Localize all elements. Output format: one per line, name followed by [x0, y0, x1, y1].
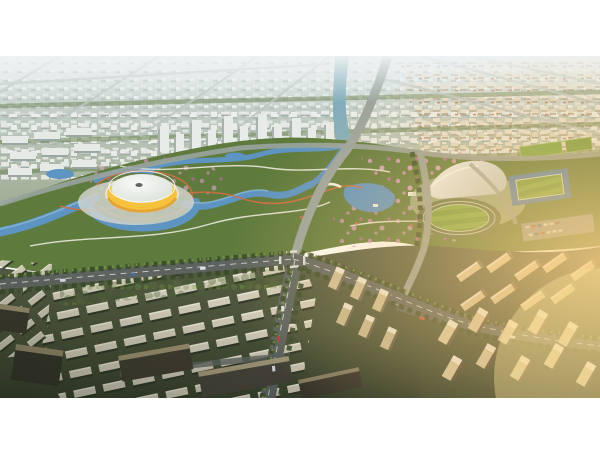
- rendering-svg: [0, 56, 600, 398]
- aerial-masterplan-rendering: [0, 56, 600, 398]
- page-canvas: [0, 0, 600, 450]
